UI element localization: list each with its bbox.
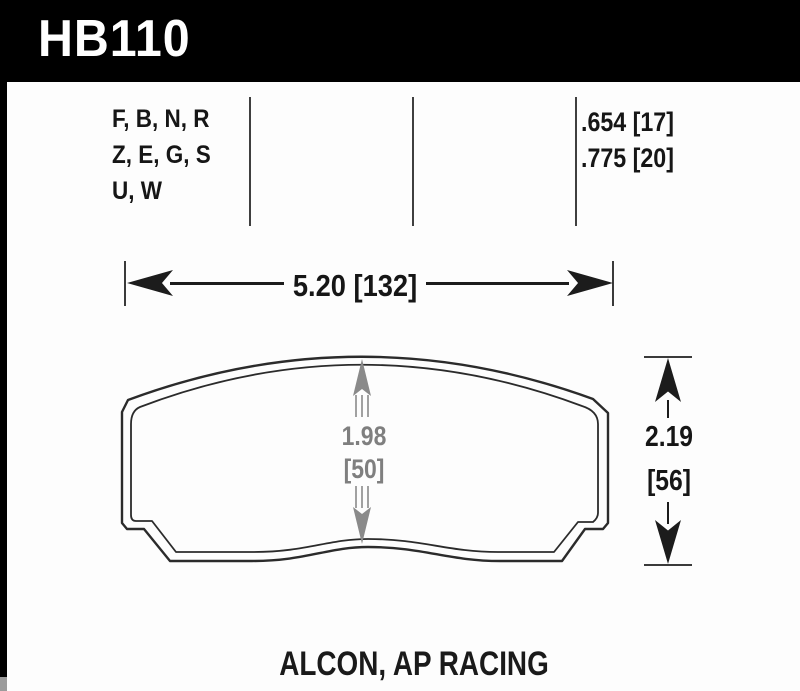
width-dim-tick-left	[124, 261, 126, 306]
height-dim-tick-bottom	[644, 564, 692, 566]
overall-height-inches: 2.19	[645, 421, 693, 454]
left-edge-strip-tail	[0, 677, 7, 691]
height-dim-line-top	[667, 400, 669, 418]
overall-height-mm: [56]	[647, 465, 691, 498]
width-dim-tick-right	[612, 261, 614, 306]
compound-line-1: F, B, N, R	[112, 101, 211, 137]
width-dim-line-left	[170, 282, 284, 285]
height-dim-tick-top	[644, 356, 692, 358]
left-edge-strip	[0, 0, 7, 677]
thickness-line-2: .775 [20]	[581, 140, 674, 176]
part-number: HB110	[38, 11, 191, 67]
applications-text: ALCON, AP RACING	[279, 645, 549, 684]
table-divider-2	[412, 97, 414, 226]
width-dim-line-right	[426, 282, 569, 285]
arrow-up-icon	[655, 358, 681, 402]
center-height-inches: 1.98	[342, 421, 387, 452]
compound-line-3: U, W	[112, 173, 211, 209]
table-divider-3	[575, 97, 577, 226]
height-dim-line-bottom	[667, 502, 669, 524]
spec-sheet: HB110 F, B, N, R Z, E, G, S U, W .654 [1…	[0, 0, 800, 691]
table-divider-1	[249, 97, 251, 226]
center-height-mm: [50]	[344, 454, 385, 485]
compound-line-2: Z, E, G, S	[112, 137, 211, 173]
width-dim-label: 5.20 [132]	[293, 268, 417, 304]
arrow-left-icon	[127, 270, 173, 296]
compound-codes: F, B, N, R Z, E, G, S U, W	[112, 101, 211, 209]
thickness-line-1: .654 [17]	[581, 104, 674, 140]
arrow-down-icon	[655, 520, 681, 564]
pad-thickness-values: .654 [17] .775 [20]	[581, 104, 674, 176]
arrow-right-icon	[567, 270, 613, 296]
